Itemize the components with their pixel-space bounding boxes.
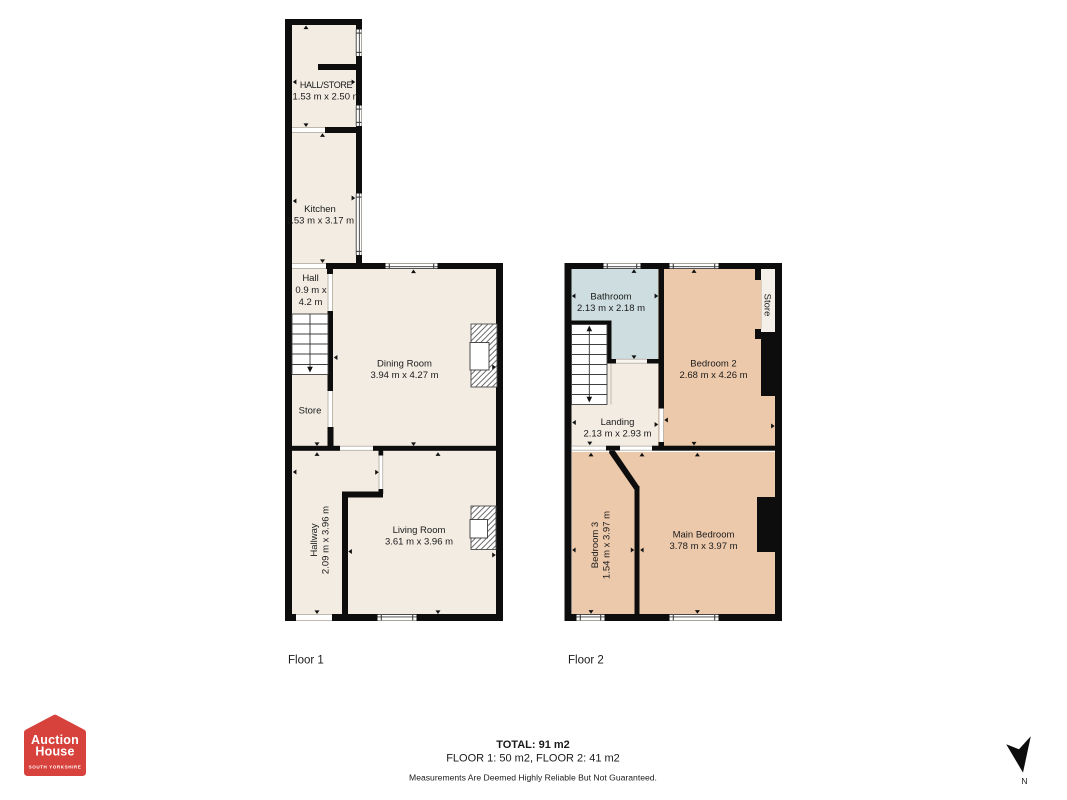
- svg-text:1.54 m x 3.97 m: 1.54 m x 3.97 m: [602, 511, 613, 579]
- svg-text:N: N: [1021, 776, 1027, 786]
- svg-text:Floor 2: Floor 2: [568, 655, 604, 667]
- svg-text:House: House: [35, 745, 74, 759]
- svg-text:Bedroom 2: Bedroom 2: [690, 359, 736, 370]
- svg-text:Bathroom: Bathroom: [590, 292, 631, 303]
- svg-text:Kitchen: Kitchen: [304, 204, 336, 215]
- svg-text:SOUTH YORKSHIRE: SOUTH YORKSHIRE: [29, 765, 82, 770]
- svg-text:1.53 m x 3.17 m: 1.53 m x 3.17 m: [286, 216, 354, 227]
- svg-text:1.53 m x 2.50 m: 1.53 m x 2.50 m: [292, 92, 360, 103]
- svg-text:2.68 m x 4.26 m: 2.68 m x 4.26 m: [679, 370, 747, 381]
- svg-text:3.61 m x 3.96 m: 3.61 m x 3.96 m: [385, 537, 453, 548]
- svg-text:Main Bedroom: Main Bedroom: [673, 530, 735, 541]
- svg-text:Hall: Hall: [302, 273, 318, 284]
- svg-text:2.09 m x 3.96 m: 2.09 m x 3.96 m: [321, 506, 332, 574]
- svg-text:TOTAL: 91 m2: TOTAL: 91 m2: [496, 739, 570, 751]
- svg-text:FLOOR 1: 50 m2, FLOOR 2: 41 m2: FLOOR 1: 50 m2, FLOOR 2: 41 m2: [446, 753, 620, 765]
- svg-text:3.94 m x 4.27 m: 3.94 m x 4.27 m: [370, 370, 438, 381]
- svg-text:Landing: Landing: [601, 417, 635, 428]
- svg-text:0.9 m x: 0.9 m x: [295, 285, 326, 296]
- svg-text:Hallway: Hallway: [309, 523, 320, 557]
- svg-text:HALL/STORE: HALL/STORE: [300, 80, 353, 90]
- svg-text:2.13 m x 2.18 m: 2.13 m x 2.18 m: [577, 303, 645, 314]
- svg-text:Store: Store: [299, 406, 322, 417]
- svg-text:Bedroom 3: Bedroom 3: [590, 522, 601, 568]
- svg-text:Floor 1: Floor 1: [288, 655, 324, 667]
- svg-text:4.2 m: 4.2 m: [299, 297, 323, 308]
- svg-text:Dining Room: Dining Room: [377, 359, 432, 370]
- svg-text:Store: Store: [762, 294, 773, 317]
- svg-text:Living Room: Living Room: [393, 525, 446, 536]
- svg-text:2.13 m x 2.93 m: 2.13 m x 2.93 m: [583, 429, 651, 440]
- svg-text:3.78 m x 3.97 m: 3.78 m x 3.97 m: [669, 541, 737, 552]
- svg-text:Measurements Are Deemed Highly: Measurements Are Deemed Highly Reliable …: [409, 773, 657, 783]
